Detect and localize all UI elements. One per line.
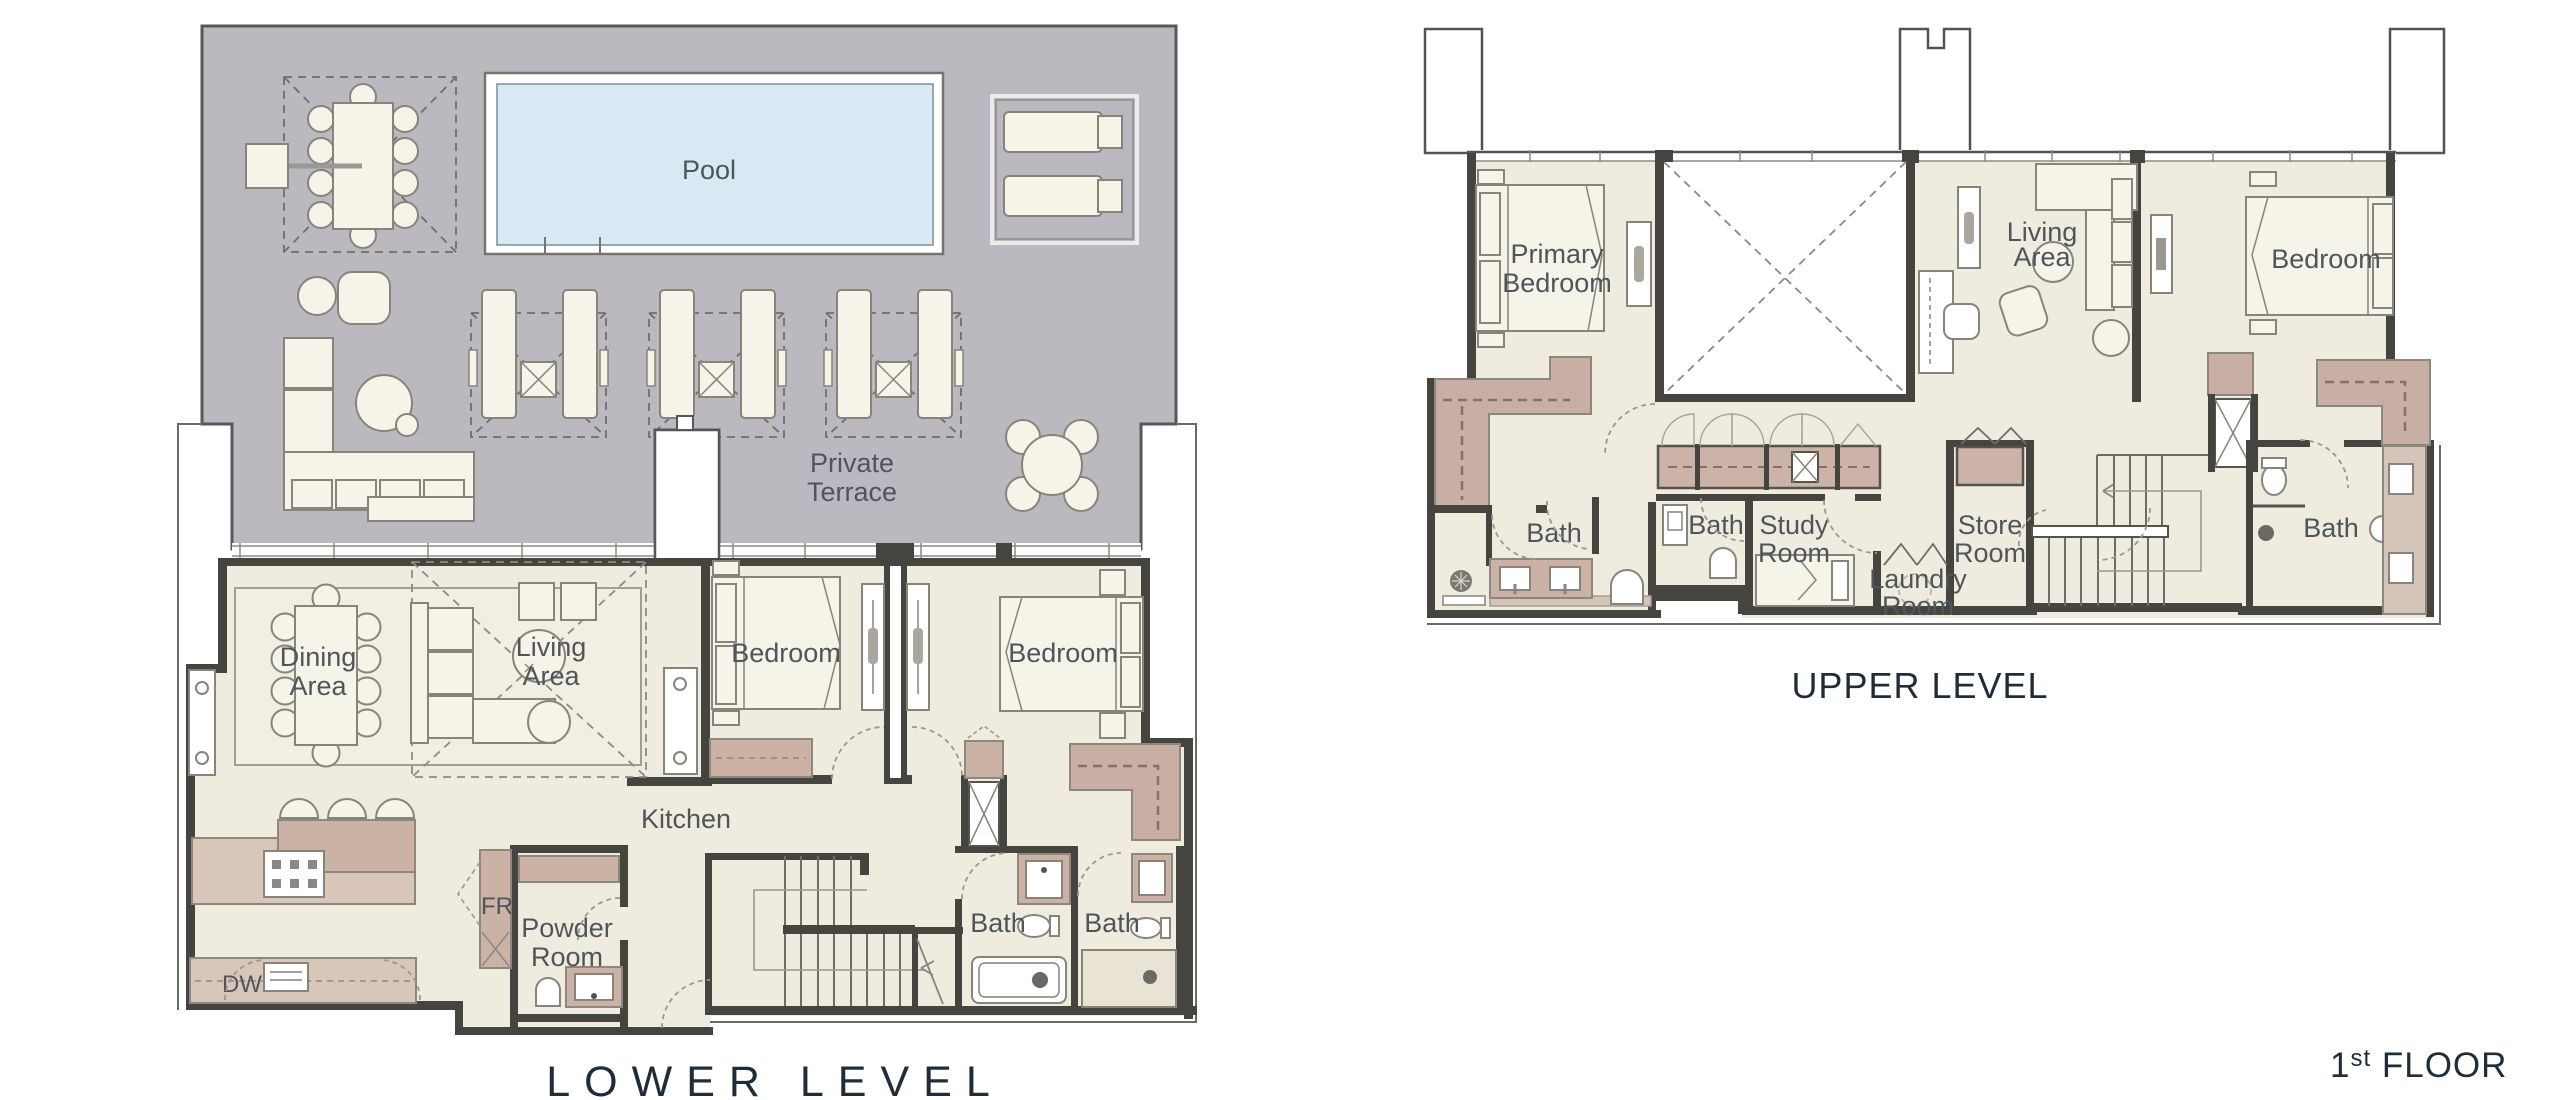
svg-text:FR: FR bbox=[481, 893, 513, 920]
svg-text:Bath: Bath bbox=[1084, 908, 1140, 938]
svg-text:Pool: Pool bbox=[682, 155, 736, 185]
svg-text:Bedroom: Bedroom bbox=[1008, 638, 1118, 668]
svg-text:Living: Living bbox=[516, 632, 587, 662]
svg-text:LOWER LEVEL: LOWER LEVEL bbox=[546, 1058, 1004, 1100]
svg-text:Bedroom: Bedroom bbox=[731, 638, 841, 668]
svg-text:Powder: Powder bbox=[521, 913, 613, 943]
svg-text:Room: Room bbox=[531, 942, 603, 972]
svg-text:Bath: Bath bbox=[2303, 513, 2359, 543]
svg-text:Area: Area bbox=[289, 671, 347, 701]
svg-text:Room: Room bbox=[1882, 591, 1954, 621]
svg-text:Private: Private bbox=[810, 448, 894, 478]
svg-text:Primary: Primary bbox=[1511, 239, 1604, 269]
svg-text:Laundry: Laundry bbox=[1869, 564, 1967, 594]
svg-text:DW: DW bbox=[222, 971, 262, 998]
svg-text:Dining: Dining bbox=[280, 642, 357, 672]
svg-text:Study: Study bbox=[1759, 510, 1829, 540]
svg-text:UPPER LEVEL: UPPER LEVEL bbox=[1791, 665, 2048, 706]
svg-text:Area: Area bbox=[2013, 242, 2071, 272]
svg-text:Store: Store bbox=[1958, 510, 2023, 540]
svg-text:Bedroom: Bedroom bbox=[2271, 244, 2381, 274]
svg-text:1st FLOOR: 1st FLOOR bbox=[2330, 1045, 2507, 1085]
svg-text:Bedroom: Bedroom bbox=[1502, 268, 1612, 298]
svg-text:Bath: Bath bbox=[1526, 518, 1582, 548]
svg-text:Room: Room bbox=[1758, 538, 1830, 568]
svg-text:Bath: Bath bbox=[1688, 510, 1744, 540]
svg-text:Bath: Bath bbox=[970, 908, 1026, 938]
svg-text:Area: Area bbox=[522, 661, 580, 691]
svg-text:Terrace: Terrace bbox=[807, 477, 897, 507]
svg-text:Kitchen: Kitchen bbox=[641, 804, 731, 834]
svg-text:Room: Room bbox=[1954, 538, 2026, 568]
